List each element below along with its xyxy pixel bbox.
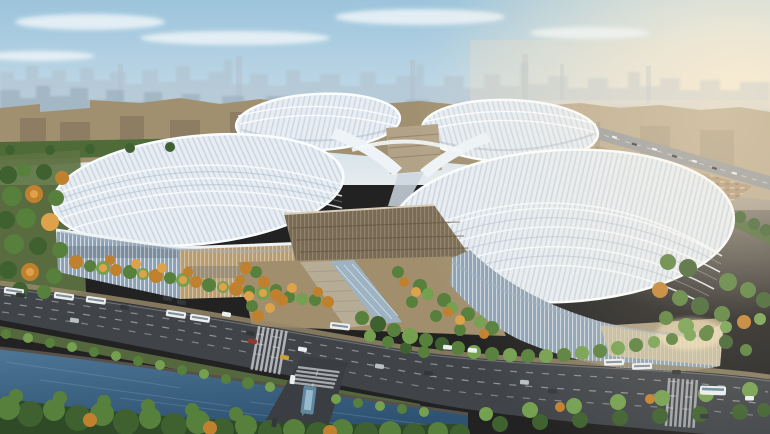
atmospheric-haze [420, 0, 770, 434]
scene-canvas [0, 0, 770, 434]
aerial-rendering [0, 0, 770, 434]
